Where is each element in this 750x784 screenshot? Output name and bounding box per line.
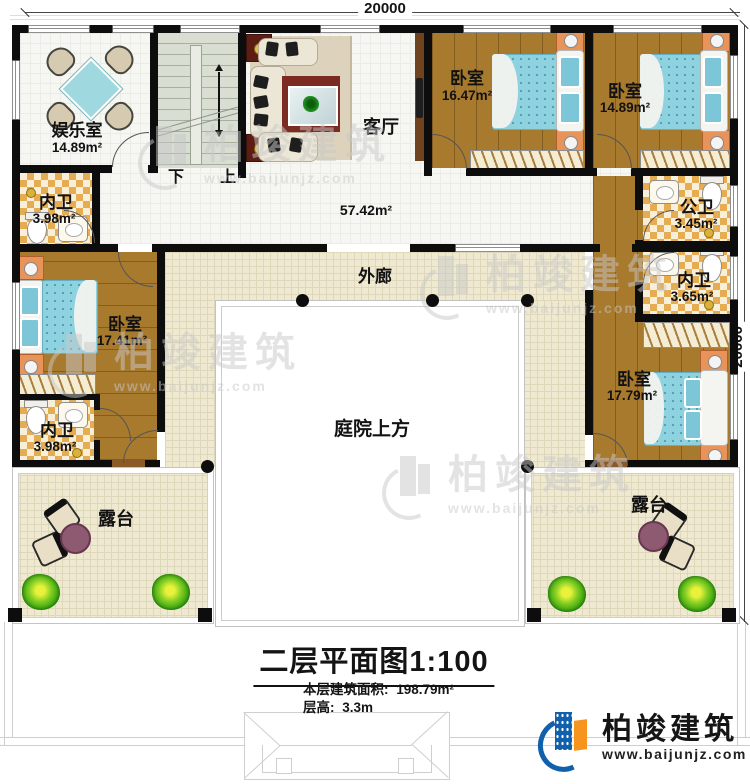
corridor-right xyxy=(523,300,585,467)
pillow xyxy=(684,378,702,408)
wall xyxy=(94,440,100,460)
column xyxy=(521,460,534,473)
floor-plan: 20000 20000 xyxy=(0,0,750,784)
wall xyxy=(585,290,593,435)
plan-title-text: 二层平面图 xyxy=(259,646,409,678)
room-label: 卧室 xyxy=(608,83,642,100)
bed-headboard xyxy=(700,370,728,446)
sink xyxy=(649,180,679,204)
wall xyxy=(466,168,597,176)
wall xyxy=(631,168,738,176)
window xyxy=(730,185,738,227)
window xyxy=(730,256,738,300)
ground-line xyxy=(4,622,5,746)
wall xyxy=(150,25,158,173)
company-logo: 柏竣建筑 www.baijunjz.com xyxy=(538,708,747,768)
wall xyxy=(520,244,600,252)
pillow xyxy=(703,56,723,88)
wall xyxy=(238,25,246,178)
window xyxy=(12,60,20,120)
wall xyxy=(585,25,593,176)
wall xyxy=(410,244,455,252)
room-area: 57.42m² xyxy=(340,203,392,217)
stair-arrow-line xyxy=(218,72,220,130)
terrace-label: 露台 xyxy=(98,510,134,528)
sofa-cushion xyxy=(265,41,279,57)
sofa xyxy=(258,132,318,162)
pillow xyxy=(684,410,702,440)
window xyxy=(730,374,738,440)
wall xyxy=(627,460,738,467)
sofa-cushion xyxy=(285,41,298,56)
room-label: 内卫 xyxy=(677,272,711,289)
bush xyxy=(678,576,716,612)
wall xyxy=(152,244,327,252)
wall xyxy=(157,252,165,432)
room-area: 17.79m² xyxy=(607,389,657,403)
stair-down-label: 下 xyxy=(168,170,184,186)
courtyard-label: 庭院上方 xyxy=(334,420,410,439)
bush xyxy=(22,574,60,610)
stair-up-label: 上 xyxy=(220,170,236,186)
pillow xyxy=(559,56,581,88)
window xyxy=(455,244,522,252)
stair-arrow-up xyxy=(215,64,223,71)
wall xyxy=(12,460,112,467)
corner-post xyxy=(198,608,212,622)
window xyxy=(730,55,738,119)
floor-area-label: 本层建筑面积: xyxy=(303,682,389,697)
nightstand xyxy=(16,256,44,280)
floor-area-value: 198.79m² xyxy=(396,682,454,697)
column xyxy=(521,294,534,307)
room-label: 娱乐室 xyxy=(52,122,103,139)
wall xyxy=(148,165,158,173)
ground-line xyxy=(12,622,13,738)
bush xyxy=(152,574,190,610)
room-area: 3.98m² xyxy=(34,440,77,454)
wall xyxy=(12,244,118,252)
column xyxy=(296,294,309,307)
tv xyxy=(416,78,423,118)
pillow xyxy=(703,92,723,124)
pillow xyxy=(559,92,581,124)
porch-roof-notch xyxy=(276,758,292,774)
room-label: 公卫 xyxy=(680,199,714,216)
wall xyxy=(643,241,730,248)
window xyxy=(112,25,154,33)
window xyxy=(613,25,702,33)
company-url: www.baijunjz.com xyxy=(602,746,747,762)
room-area: 17.41m² xyxy=(97,334,147,348)
stair-arrow-down xyxy=(215,130,223,137)
room-area: 3.65m² xyxy=(671,290,714,304)
wall xyxy=(635,282,643,314)
window xyxy=(320,25,380,33)
room-area: 3.98m² xyxy=(33,212,76,226)
wall xyxy=(635,314,730,322)
corner-post xyxy=(8,608,22,622)
corner-post xyxy=(527,608,541,622)
pillow xyxy=(20,286,40,316)
room-area: 16.47m² xyxy=(442,89,492,103)
company-name: 柏竣建筑 xyxy=(602,714,747,746)
terrace-table xyxy=(60,523,91,554)
bed-blanket xyxy=(74,280,96,352)
window xyxy=(463,25,551,33)
column xyxy=(201,460,214,473)
room-label: 卧室 xyxy=(617,371,651,388)
terrace-label: 露台 xyxy=(631,496,667,514)
room-area: 14.89m² xyxy=(600,101,650,115)
room-area: 14.89m² xyxy=(52,141,102,155)
shower-head xyxy=(26,188,36,198)
courtyard xyxy=(215,300,525,627)
wall xyxy=(635,168,643,210)
nightstand xyxy=(700,350,728,372)
corridor-label: 外廊 xyxy=(358,268,392,285)
sofa-cushion xyxy=(253,113,268,126)
room-label: 内卫 xyxy=(40,422,74,439)
wall xyxy=(635,240,643,252)
pillow xyxy=(20,318,40,348)
plant xyxy=(303,96,319,112)
room-label: 内卫 xyxy=(39,194,73,211)
sofa-cushion xyxy=(289,137,303,153)
terrace-table xyxy=(638,521,669,552)
sofa-cushion xyxy=(253,75,269,90)
window xyxy=(12,282,20,350)
room-label: 客厅 xyxy=(363,118,399,136)
corridor-left xyxy=(165,300,215,467)
porch-roof-notch xyxy=(398,758,414,774)
bush xyxy=(548,576,586,612)
corner-post xyxy=(722,608,736,622)
floor-height-value: 3.3m xyxy=(342,700,373,715)
floor-area-line: 本层建筑面积: 198.79m² xyxy=(303,678,454,698)
window xyxy=(28,25,90,33)
room-label: 卧室 xyxy=(450,70,484,87)
plan-scale: 1:100 xyxy=(409,646,488,678)
company-logo-icon xyxy=(538,708,594,768)
wall xyxy=(12,394,94,400)
dimension-value-top: 20000 xyxy=(358,0,412,17)
room-area: 3.45m² xyxy=(675,217,718,231)
sofa-cushion xyxy=(267,137,281,153)
room-label: 卧室 xyxy=(108,316,142,333)
stair-stringer xyxy=(190,45,202,165)
floor-height-label: 层高: xyxy=(303,700,335,715)
wardrobe xyxy=(643,322,730,348)
eave-line xyxy=(10,19,740,20)
floor-height-line: 层高: 3.3m xyxy=(303,696,373,716)
column xyxy=(426,294,439,307)
window xyxy=(180,25,240,33)
wall xyxy=(424,25,432,176)
sofa-cushion xyxy=(253,95,269,109)
